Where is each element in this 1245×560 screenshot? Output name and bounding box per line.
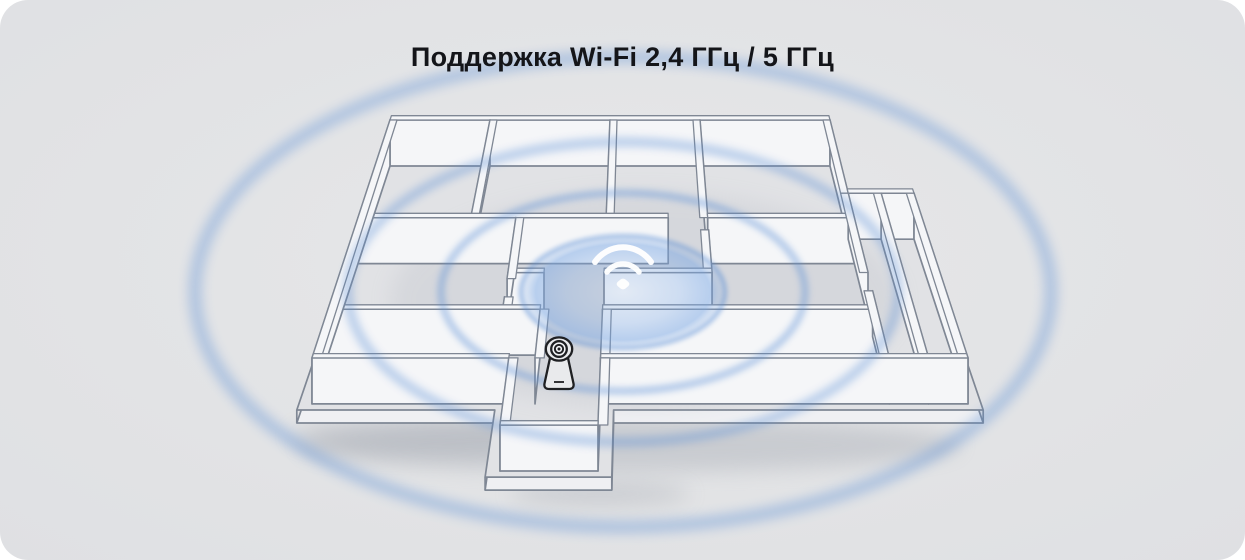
wall — [601, 358, 968, 404]
banner-title: Поддержка Wi-Fi 2,4 ГГц / 5 ГГц — [0, 42, 1245, 73]
wall — [312, 358, 509, 404]
camera-icon — [544, 337, 573, 389]
promo-banner: Поддержка Wi-Fi 2,4 ГГц / 5 ГГц — [0, 0, 1245, 560]
wall-top — [328, 305, 541, 309]
wall-top — [601, 354, 968, 358]
floorplan-illustration — [0, 0, 1245, 560]
wall-top — [500, 421, 598, 425]
